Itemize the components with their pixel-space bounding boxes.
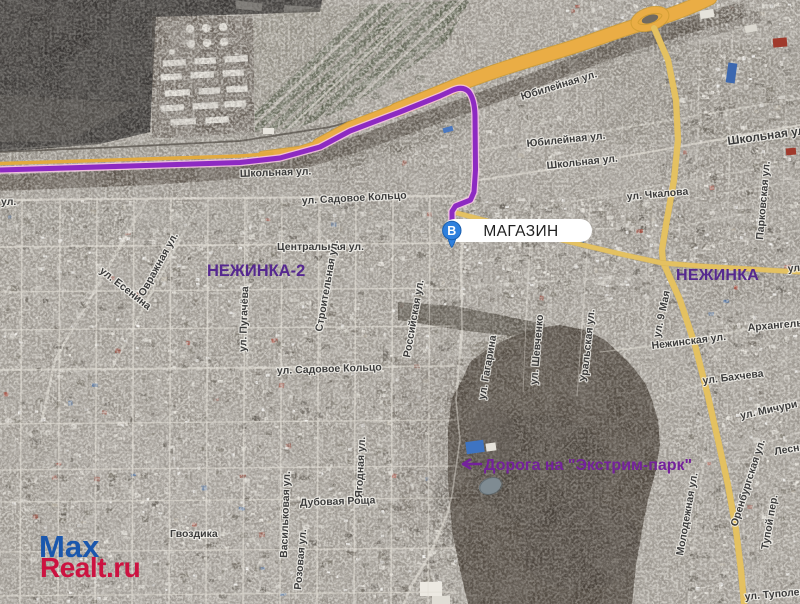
svg-text:НЕЖИНКА-2: НЕЖИНКА-2 (207, 262, 305, 280)
svg-text:В: В (447, 224, 456, 238)
svg-text:ул.: ул. (1, 196, 16, 208)
svg-text:Realt.ru: Realt.ru (40, 552, 140, 583)
svg-text:Центральная ул.: Центральная ул. (277, 241, 364, 253)
svg-text:ул. Пугачёва: ул. Пугачёва (237, 286, 251, 352)
svg-text:Дорога на "Экстрим-парк": Дорога на "Экстрим-парк" (484, 457, 692, 474)
svg-text:НЕЖИНКА: НЕЖИНКА (676, 267, 759, 284)
svg-text:Гвоздика: Гвоздика (170, 528, 218, 540)
svg-text:МАГАЗИН: МАГАЗИН (483, 223, 558, 240)
svg-text:Школьная ул.: Школьная ул. (240, 166, 312, 180)
svg-text:ул: ул (787, 262, 800, 275)
